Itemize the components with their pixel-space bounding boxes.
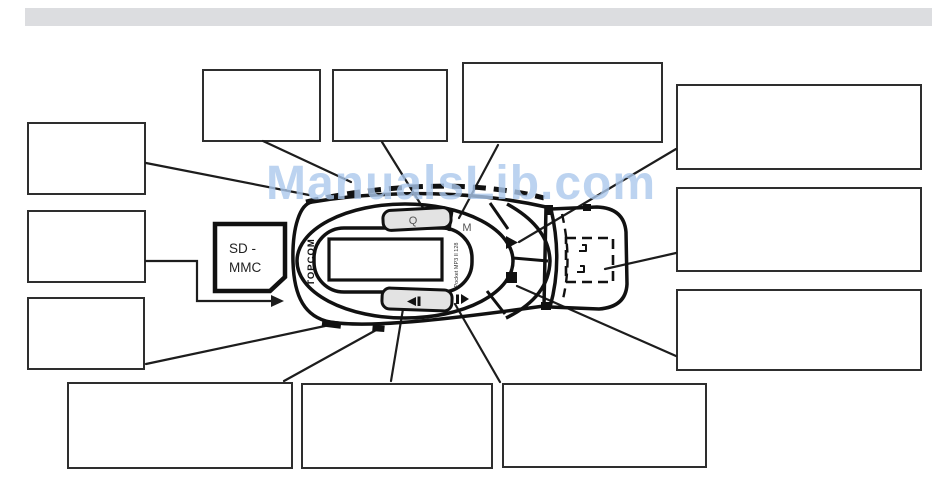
leader-line: [146, 326, 325, 364]
leader-line: [605, 253, 676, 269]
battery-contact-mark: [579, 245, 586, 251]
sd-arrow-icon: [271, 295, 284, 307]
leader-line: [263, 141, 351, 182]
divider: [487, 291, 505, 314]
cover-latch-notch: [545, 205, 553, 215]
side-connector-tab: [322, 319, 342, 328]
skip-forward-icon-bar: [456, 295, 459, 305]
previous-button-shape: [382, 288, 453, 311]
display-screen: [329, 239, 442, 280]
leader-line: [146, 163, 309, 195]
mp3-player-device: Q M TOPCOM Pocket MP3 II 128: [293, 186, 627, 332]
battery-contact-mark: [577, 266, 584, 272]
cover-latch-notch: [541, 302, 551, 310]
sd-card-slot-box: SD - MMC: [215, 224, 285, 291]
leader-line: [391, 309, 403, 381]
play-icon: [506, 236, 518, 249]
sd-card-shape: [215, 224, 285, 291]
m-button-label: M: [462, 222, 471, 234]
divider: [490, 203, 508, 229]
sd-label-line2: MMC: [229, 260, 261, 275]
stop-icon: [506, 272, 517, 283]
device-diagram: SD - MMC: [0, 0, 950, 477]
leader-line: [517, 286, 676, 356]
q-button-label: Q: [409, 215, 418, 227]
manual-diagram-page: SD - MMC: [0, 0, 950, 477]
model-text: Pocket MP3 II 128: [454, 243, 460, 288]
battery-cover: [550, 207, 627, 309]
side-connector-tab: [372, 325, 385, 333]
skip-back-icon-bar: [418, 297, 421, 307]
cover-latch-notch: [583, 204, 591, 211]
battery-compartment-dashed: [566, 238, 613, 282]
sd-label-line1: SD -: [229, 241, 256, 256]
skip-forward-icon: [461, 294, 469, 304]
divider: [513, 258, 548, 261]
previous-button: [382, 288, 453, 311]
leader-line: [284, 329, 378, 381]
brand-text: TOPCOM: [306, 238, 317, 286]
